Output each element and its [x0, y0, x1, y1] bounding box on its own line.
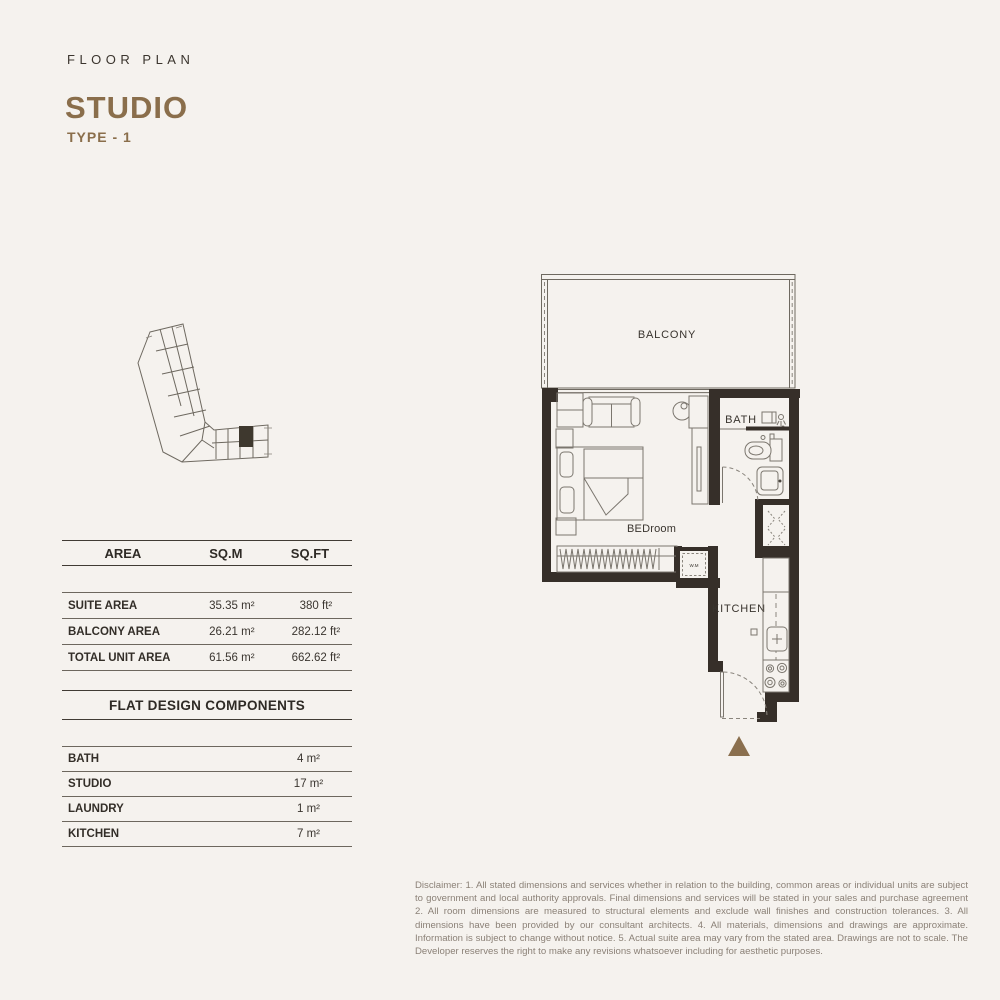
table-row: BATH 4 m² — [62, 747, 352, 772]
components-table-title: FLAT DESIGN COMPONENTS — [62, 690, 352, 720]
kitchen-label: KITCHEN — [712, 603, 766, 615]
bedroom-label: BEDroom — [627, 523, 676, 535]
row-label: KITCHEN — [62, 828, 265, 840]
area-table-rows: SUITE AREA 35.35 m² 380 ft² BALCONY AREA… — [62, 592, 352, 671]
disclaimer-text: Disclaimer: 1. All stated dimensions and… — [415, 879, 968, 958]
entry-arrow-icon — [728, 736, 750, 756]
balcony-label: BALCONY — [638, 329, 696, 341]
services-shaft — [768, 511, 785, 545]
bathroom: BATH — [720, 412, 789, 503]
row-value: 17 m² — [265, 778, 352, 790]
sqm-col-header: SQ.M — [184, 546, 268, 561]
stove-icon — [763, 660, 789, 692]
row-label: SUITE AREA — [62, 600, 190, 612]
pillow — [560, 452, 573, 477]
bath-door — [723, 467, 759, 503]
row-label: TOTAL UNIT AREA — [62, 652, 190, 664]
bath-label: BATH — [725, 414, 757, 426]
table-row: STUDIO 17 m² — [62, 772, 352, 797]
row-sqm: 26.21 m² — [190, 626, 274, 638]
row-label: LAUNDRY — [62, 803, 265, 815]
wardrobe-cabinet — [692, 428, 708, 504]
console-table — [557, 393, 583, 427]
table-row: TOTAL UNIT AREA 61.56 m² 662.62 ft² — [62, 645, 352, 671]
sofa — [583, 397, 640, 427]
bed — [556, 429, 643, 535]
building-keyplan — [116, 318, 286, 490]
row-sqft: 282.12 ft² — [274, 626, 358, 638]
components-table: FLAT DESIGN COMPONENTS BATH 4 m² STUDIO … — [62, 690, 352, 847]
table-row: KITCHEN 7 m² — [62, 822, 352, 847]
area-col-header: AREA — [62, 546, 184, 561]
kitchen-cabinet — [763, 558, 789, 592]
row-sqm: 61.56 m² — [190, 652, 274, 664]
table-row: SUITE AREA 35.35 m² 380 ft² — [62, 593, 352, 619]
row-value: 1 m² — [265, 803, 352, 815]
page-subtitle: TYPE - 1 — [67, 129, 132, 145]
washing-machine-label: W.M — [690, 563, 699, 568]
kitchen-sink-icon — [767, 627, 787, 651]
row-sqm: 35.35 m² — [190, 600, 274, 612]
entry-door — [721, 672, 768, 719]
closet-hanging-rail — [557, 546, 677, 572]
row-label: BALCONY AREA — [62, 626, 190, 638]
row-label: STUDIO — [62, 778, 265, 790]
table-row: BALCONY AREA 26.21 m² 282.12 ft² — [62, 619, 352, 645]
shower-icon — [762, 412, 786, 428]
area-table: AREA SQ.M SQ.FT SUITE AREA 35.35 m² 380 … — [62, 540, 352, 671]
toilet-icon — [745, 439, 782, 461]
page-eyebrow: FLOOR PLAN — [67, 52, 194, 67]
row-value: 7 m² — [265, 828, 352, 840]
bath-sink-icon — [757, 467, 783, 495]
keyplan-unit-highlight — [239, 426, 253, 447]
area-table-header: AREA SQ.M SQ.FT — [62, 540, 352, 566]
bath-accessory-icon — [761, 436, 765, 440]
row-label: BATH — [62, 753, 265, 765]
pillow — [560, 487, 574, 513]
window-wall — [556, 390, 710, 393]
floor-plan-drawing: BALCONY — [530, 260, 810, 770]
row-sqft: 380 ft² — [274, 600, 358, 612]
page-title: STUDIO — [65, 90, 188, 126]
washing-machine-closet: W.M — [676, 547, 712, 582]
row-value: 4 m² — [265, 753, 352, 765]
desk-and-chair — [673, 396, 708, 428]
balcony: BALCONY — [542, 275, 796, 389]
row-sqft: 662.62 ft² — [274, 652, 358, 664]
switch-icon — [751, 629, 757, 635]
sqft-col-header: SQ.FT — [268, 546, 352, 561]
table-row: LAUNDRY 1 m² — [62, 797, 352, 822]
components-table-rows: BATH 4 m² STUDIO 17 m² LAUNDRY 1 m² KITC… — [62, 746, 352, 847]
